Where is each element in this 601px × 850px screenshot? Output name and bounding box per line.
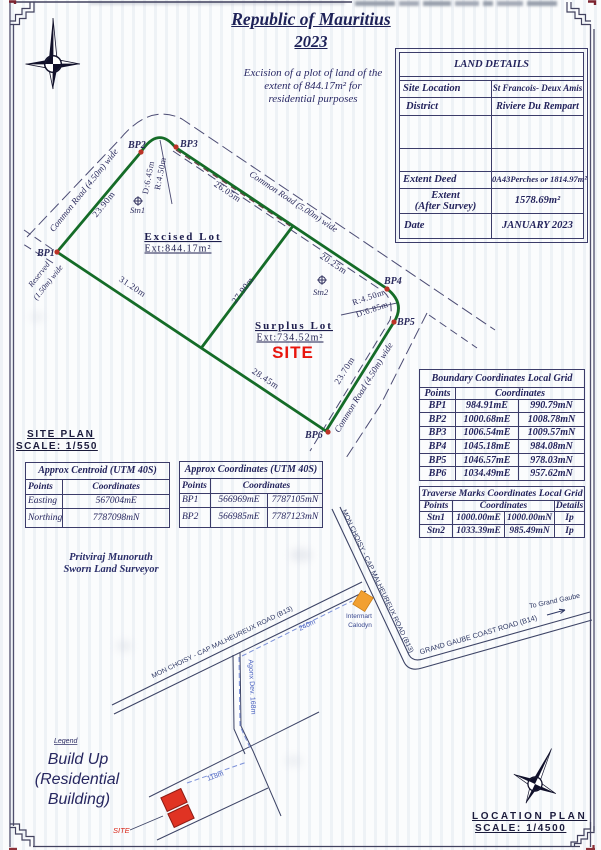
svg-text:BP5: BP5 [396,317,415,328]
svg-text:Stn2: Stn2 [313,287,329,297]
svg-text:(Residential: (Residential [35,771,120,788]
svg-text:MON CHOISY - CAP MALHEUREUX RO: MON CHOISY - CAP MALHEUREUX ROAD (B13) [151,605,294,680]
svg-text:SITE: SITE [113,826,131,835]
svg-text:Common Road (5.00m) wide: Common Road (5.00m) wide [248,169,340,234]
svg-text:BP4: BP4 [383,276,402,287]
svg-text:Stn1: Stn1 [130,205,145,215]
svg-text:23.90m: 23.90m [90,189,117,219]
svg-text:28.45m: 28.45m [250,366,281,391]
svg-text:Build Up: Build Up [48,751,109,768]
svg-text:Calodyn: Calodyn [348,622,372,629]
svg-text:27.90m: 27.90m [230,275,256,305]
svg-text:SITE: SITE [272,343,314,362]
svg-text:SCALE: 1/4500: SCALE: 1/4500 [475,823,566,834]
svg-text:SITE PLAN: SITE PLAN [27,429,95,440]
svg-text:BP6: BP6 [304,430,323,441]
svg-text:20.25m: 20.25m [318,251,349,276]
svg-text:R:4.50m: R:4.50m [152,156,168,190]
svg-text:Agonx Dev. 168m: Agonx Dev. 168m [247,659,257,715]
svg-text:MON CHOISY - CAP MALHEUREUX RO: MON CHOISY - CAP MALHEUREUX ROAD (B13) [340,509,414,655]
svg-text:Ext:844.17m²: Ext:844.17m² [145,244,212,255]
svg-text:Building): Building) [48,791,110,808]
svg-text:Ext:734.52m²: Ext:734.52m² [257,333,324,344]
svg-text:Intermart: Intermart [346,613,372,620]
svg-text:Legend: Legend [54,738,78,745]
svg-text:Excised Lot: Excised Lot [144,231,221,243]
svg-text:To Grand Gaube: To Grand Gaube [529,593,581,611]
svg-text:BP2: BP2 [127,140,146,151]
svg-text:Surplus Lot: Surplus Lot [255,320,333,332]
svg-text:GRAND GAUBE COAST ROAD (B14): GRAND GAUBE COAST ROAD (B14) [419,613,539,656]
svg-text:240m: 240m [298,619,317,633]
svg-text:BP1: BP1 [36,248,55,259]
svg-text:BP3: BP3 [179,139,198,150]
svg-text:SCALE: 1/550: SCALE: 1/550 [16,441,98,452]
svg-text:Common Road (4.50m) wide: Common Road (4.50m) wide [332,341,395,434]
svg-text:118m: 118m [206,770,225,782]
svg-text:LOCATION PLAN: LOCATION PLAN [472,811,587,822]
